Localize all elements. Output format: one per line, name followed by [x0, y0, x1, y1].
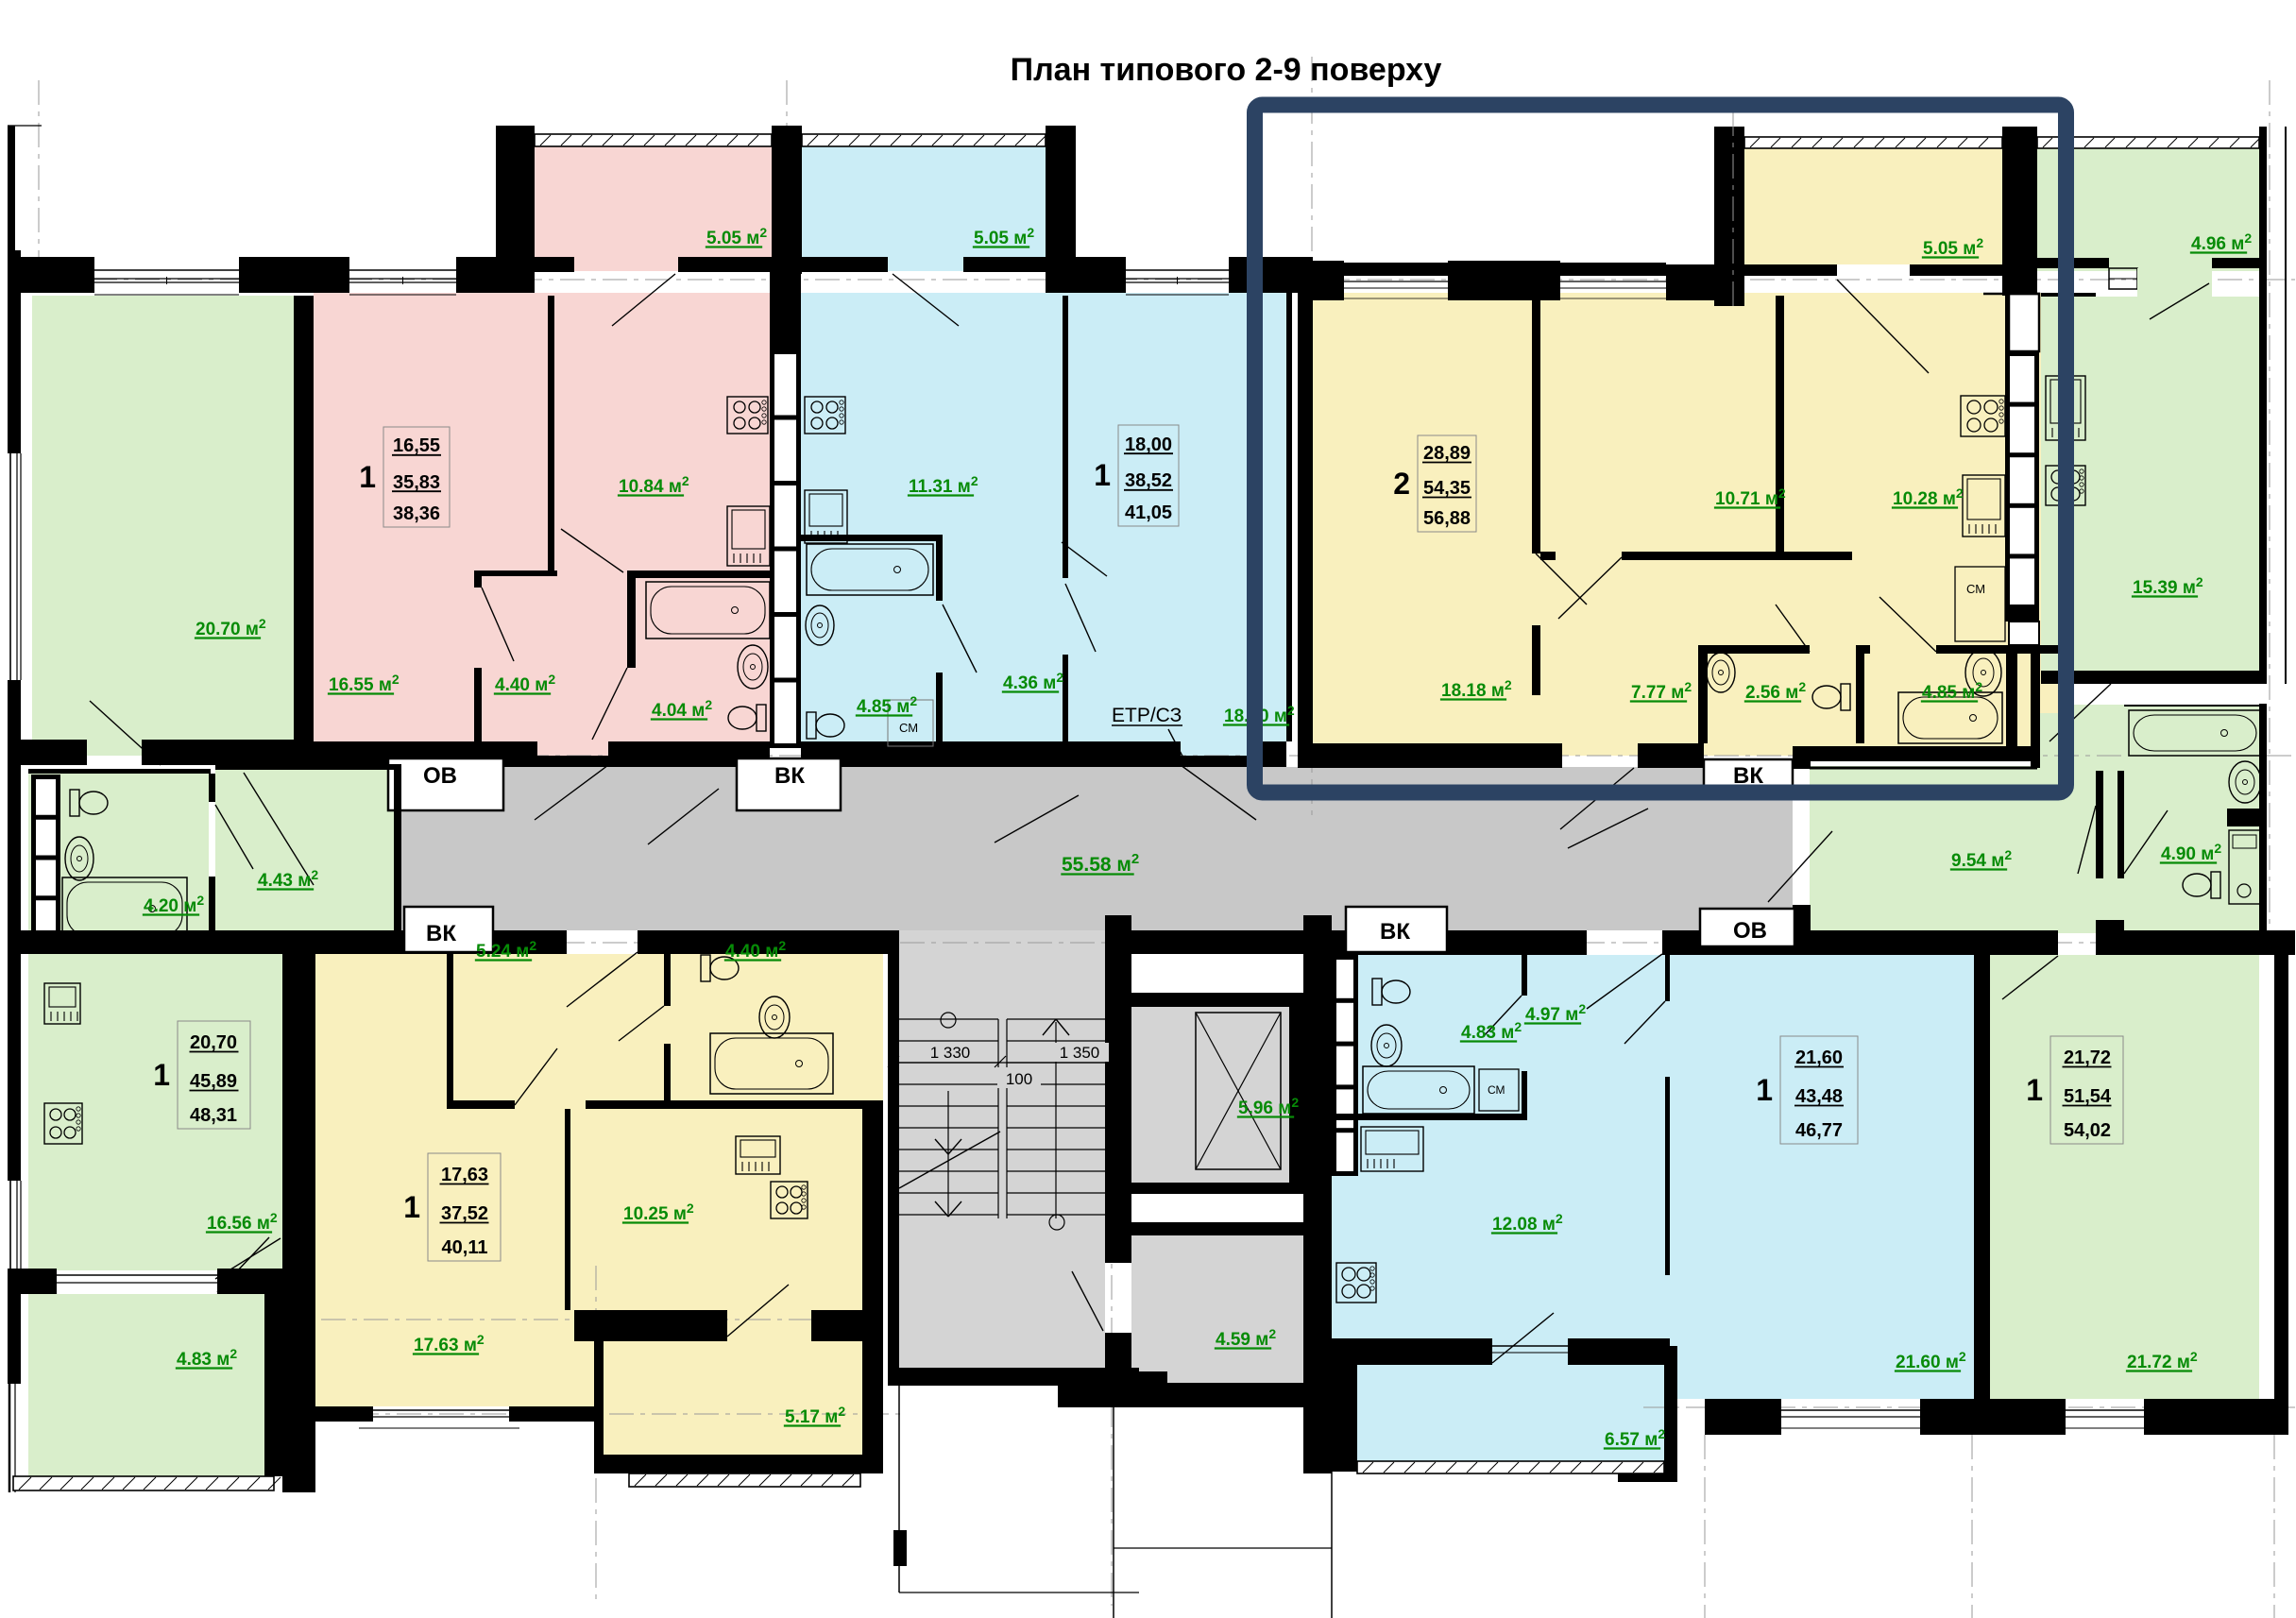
svg-text:21,60: 21,60 — [1795, 1047, 1843, 1068]
svg-text:21,72: 21,72 — [2064, 1047, 2111, 1068]
svg-text:17,63: 17,63 — [441, 1165, 488, 1185]
svg-text:4.85 м2: 4.85 м2 — [857, 693, 917, 717]
svg-text:54,35: 54,35 — [1423, 478, 1471, 499]
svg-text:4.85 м2: 4.85 м2 — [1922, 679, 1982, 703]
svg-text:17.63 м2: 17.63 м2 — [414, 1332, 485, 1355]
svg-text:4.96 м2: 4.96 м2 — [2191, 230, 2252, 254]
svg-text:ЕТР/СЗ: ЕТР/СЗ — [1112, 705, 1182, 726]
svg-text:5.17 м2: 5.17 м2 — [785, 1404, 845, 1427]
svg-text:38,36: 38,36 — [393, 503, 440, 524]
svg-text:1: 1 — [403, 1190, 420, 1224]
svg-text:12.08 м2: 12.08 м2 — [1492, 1211, 1563, 1235]
svg-text:ВК: ВК — [1380, 919, 1410, 945]
svg-text:46,77: 46,77 — [1795, 1120, 1843, 1141]
svg-text:ВК: ВК — [774, 763, 805, 789]
svg-text:5.24 м2: 5.24 м2 — [476, 938, 536, 962]
svg-text:ОВ: ОВ — [423, 763, 457, 789]
svg-text:54,02: 54,02 — [2064, 1120, 2111, 1141]
svg-text:10.71 м2: 10.71 м2 — [1715, 485, 1786, 509]
svg-text:СМ: СМ — [1966, 582, 1985, 596]
svg-text:5.96 м2: 5.96 м2 — [1238, 1095, 1299, 1118]
svg-text:35,83: 35,83 — [393, 472, 440, 493]
svg-text:6.57 м2: 6.57 м2 — [1605, 1426, 1665, 1450]
svg-text:41,05: 41,05 — [1125, 502, 1172, 523]
svg-text:55.58 м2: 55.58 м2 — [1062, 851, 1139, 876]
svg-text:18,00: 18,00 — [1125, 434, 1172, 455]
svg-text:10.25 м2: 10.25 м2 — [623, 1201, 694, 1224]
svg-text:4.90 м2: 4.90 м2 — [2161, 841, 2221, 864]
svg-text:56,88: 56,88 — [1423, 508, 1471, 529]
svg-text:21.72 м2: 21.72 м2 — [2127, 1349, 2198, 1372]
svg-text:38,52: 38,52 — [1125, 470, 1172, 491]
svg-text:4.36 м2: 4.36 м2 — [1003, 670, 1063, 693]
svg-text:2.56 м2: 2.56 м2 — [1745, 679, 1806, 703]
svg-text:4.43 м2: 4.43 м2 — [258, 867, 318, 891]
svg-text:1 330: 1 330 — [930, 1044, 971, 1062]
svg-text:48,31: 48,31 — [190, 1105, 237, 1126]
svg-text:40,11: 40,11 — [442, 1237, 488, 1258]
svg-text:45,89: 45,89 — [190, 1071, 237, 1092]
svg-text:16.55 м2: 16.55 м2 — [329, 672, 400, 695]
svg-text:16.56 м2: 16.56 м2 — [207, 1210, 278, 1234]
svg-text:ВК: ВК — [426, 921, 456, 946]
svg-text:10.28 м2: 10.28 м2 — [1893, 485, 1964, 509]
svg-text:5.05 м2: 5.05 м2 — [706, 225, 767, 248]
svg-text:100: 100 — [1006, 1070, 1032, 1088]
svg-text:20.70 м2: 20.70 м2 — [196, 616, 266, 639]
svg-text:51,54: 51,54 — [2064, 1086, 2112, 1107]
svg-text:20,70: 20,70 — [190, 1032, 237, 1053]
svg-text:1: 1 — [359, 460, 376, 494]
svg-text:4.40 м2: 4.40 м2 — [725, 938, 786, 962]
svg-text:4.20 м2: 4.20 м2 — [144, 893, 204, 916]
svg-text:1: 1 — [1094, 458, 1111, 492]
svg-text:1: 1 — [1756, 1073, 1773, 1107]
svg-text:28,89: 28,89 — [1423, 443, 1471, 464]
svg-text:4.83 м2: 4.83 м2 — [1461, 1019, 1522, 1043]
svg-text:16,55: 16,55 — [393, 435, 440, 456]
svg-text:37,52: 37,52 — [441, 1203, 488, 1224]
svg-text:5.05 м2: 5.05 м2 — [974, 225, 1034, 248]
svg-text:СМ: СМ — [1488, 1083, 1505, 1097]
svg-text:4.40 м2: 4.40 м2 — [495, 672, 555, 695]
svg-text:План типового 2-9 поверху: План типового 2-9 поверху — [1011, 52, 1442, 88]
svg-text:5.05 м2: 5.05 м2 — [1923, 235, 1983, 259]
svg-text:4.04 м2: 4.04 м2 — [652, 697, 712, 721]
svg-text:21.60 м2: 21.60 м2 — [1896, 1349, 1966, 1372]
svg-text:4.59 м2: 4.59 м2 — [1216, 1326, 1276, 1350]
svg-text:1: 1 — [2026, 1073, 2043, 1107]
svg-text:1: 1 — [153, 1058, 170, 1092]
svg-text:2: 2 — [1393, 467, 1410, 501]
svg-text:10.84 м2: 10.84 м2 — [619, 473, 689, 497]
svg-text:11.31 м2: 11.31 м2 — [909, 473, 978, 497]
svg-text:4.83 м2: 4.83 м2 — [177, 1346, 237, 1370]
svg-text:СМ: СМ — [899, 721, 918, 735]
svg-text:18.18 м2: 18.18 м2 — [1441, 677, 1512, 701]
svg-text:9.54 м2: 9.54 м2 — [1951, 847, 2012, 871]
svg-text:ОВ: ОВ — [1733, 918, 1767, 944]
svg-text:43,48: 43,48 — [1795, 1086, 1843, 1107]
svg-text:4.97 м2: 4.97 м2 — [1525, 1001, 1586, 1025]
svg-text:7.77 м2: 7.77 м2 — [1631, 679, 1692, 703]
svg-text:1 350: 1 350 — [1060, 1044, 1100, 1062]
svg-text:15.39 м2: 15.39 м2 — [2133, 574, 2203, 598]
